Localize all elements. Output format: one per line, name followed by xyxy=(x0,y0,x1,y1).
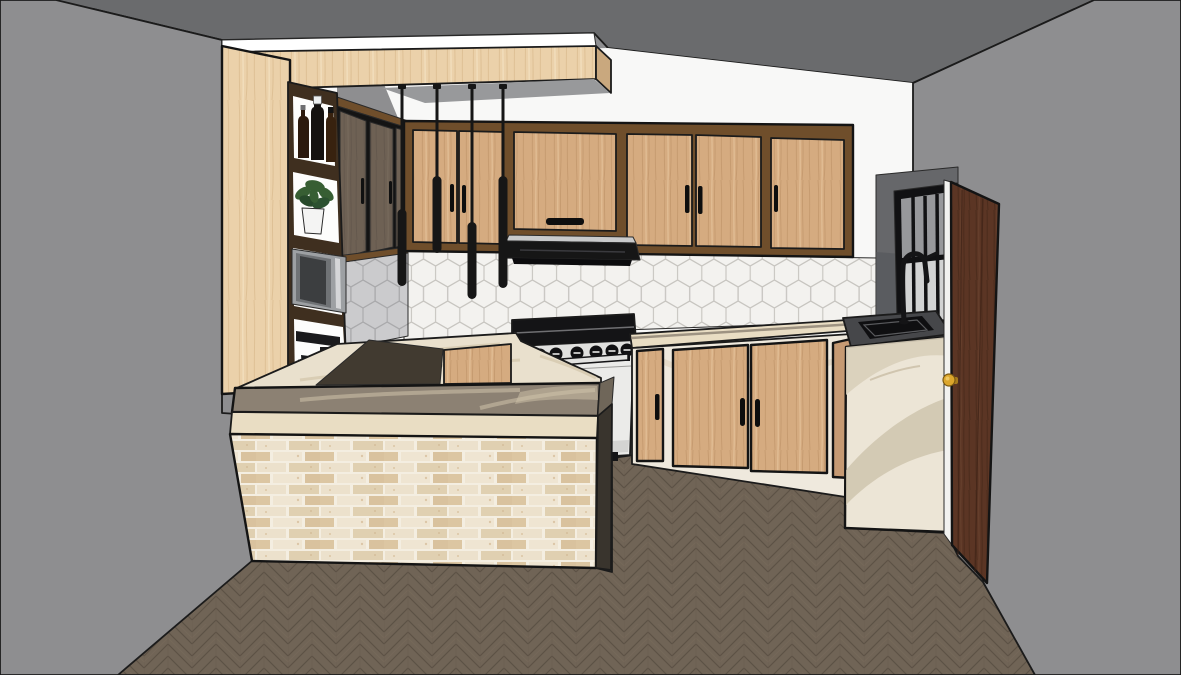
bar-peninsula xyxy=(230,377,614,570)
bottle-2-cap xyxy=(314,96,322,104)
cabinet-door-3 xyxy=(627,134,692,246)
plant-pot xyxy=(302,208,324,234)
kitchen-scene[interactable] xyxy=(0,0,1181,675)
cabinet-handle-4 xyxy=(698,186,703,214)
cabinet-door-5 xyxy=(771,138,844,249)
bottle-3 xyxy=(326,112,336,162)
bottle-3-cap xyxy=(328,107,334,113)
cabinet-handle-2 xyxy=(462,185,466,213)
bar-brick-face xyxy=(230,434,597,568)
base-handle-pair-right xyxy=(755,399,760,427)
cabinet-handle-1 xyxy=(450,184,454,212)
interior-cabinet-door xyxy=(444,344,511,384)
microwave xyxy=(292,249,346,313)
bar-end-cap xyxy=(596,404,612,570)
microwave-handle xyxy=(335,258,341,309)
side-backsplash-hex xyxy=(337,252,408,350)
upper-cabinets-left xyxy=(337,97,408,263)
cabinet-door-4 xyxy=(696,135,761,247)
render-viewport[interactable] xyxy=(0,0,1181,675)
cabinet-door-center xyxy=(514,132,616,231)
bottle-2 xyxy=(311,103,324,160)
upper-left-handle-1 xyxy=(361,178,364,204)
microwave-window xyxy=(300,256,326,305)
cabinet-handle-3 xyxy=(685,185,690,213)
base-door-pair-right xyxy=(751,340,827,473)
base-handle-pair-left xyxy=(740,398,745,426)
left-wall xyxy=(0,0,253,675)
ceiling-fill xyxy=(56,0,1094,8)
wood-column xyxy=(222,46,290,394)
cabinet-handle-5 xyxy=(774,185,778,212)
bottle-1-cap xyxy=(301,105,306,110)
range-hood xyxy=(502,235,640,266)
base-handle-narrow xyxy=(655,394,660,420)
cabinet-handle-center xyxy=(546,218,584,225)
base-door-pair-left xyxy=(673,345,748,468)
upper-left-handle-2 xyxy=(389,181,392,204)
